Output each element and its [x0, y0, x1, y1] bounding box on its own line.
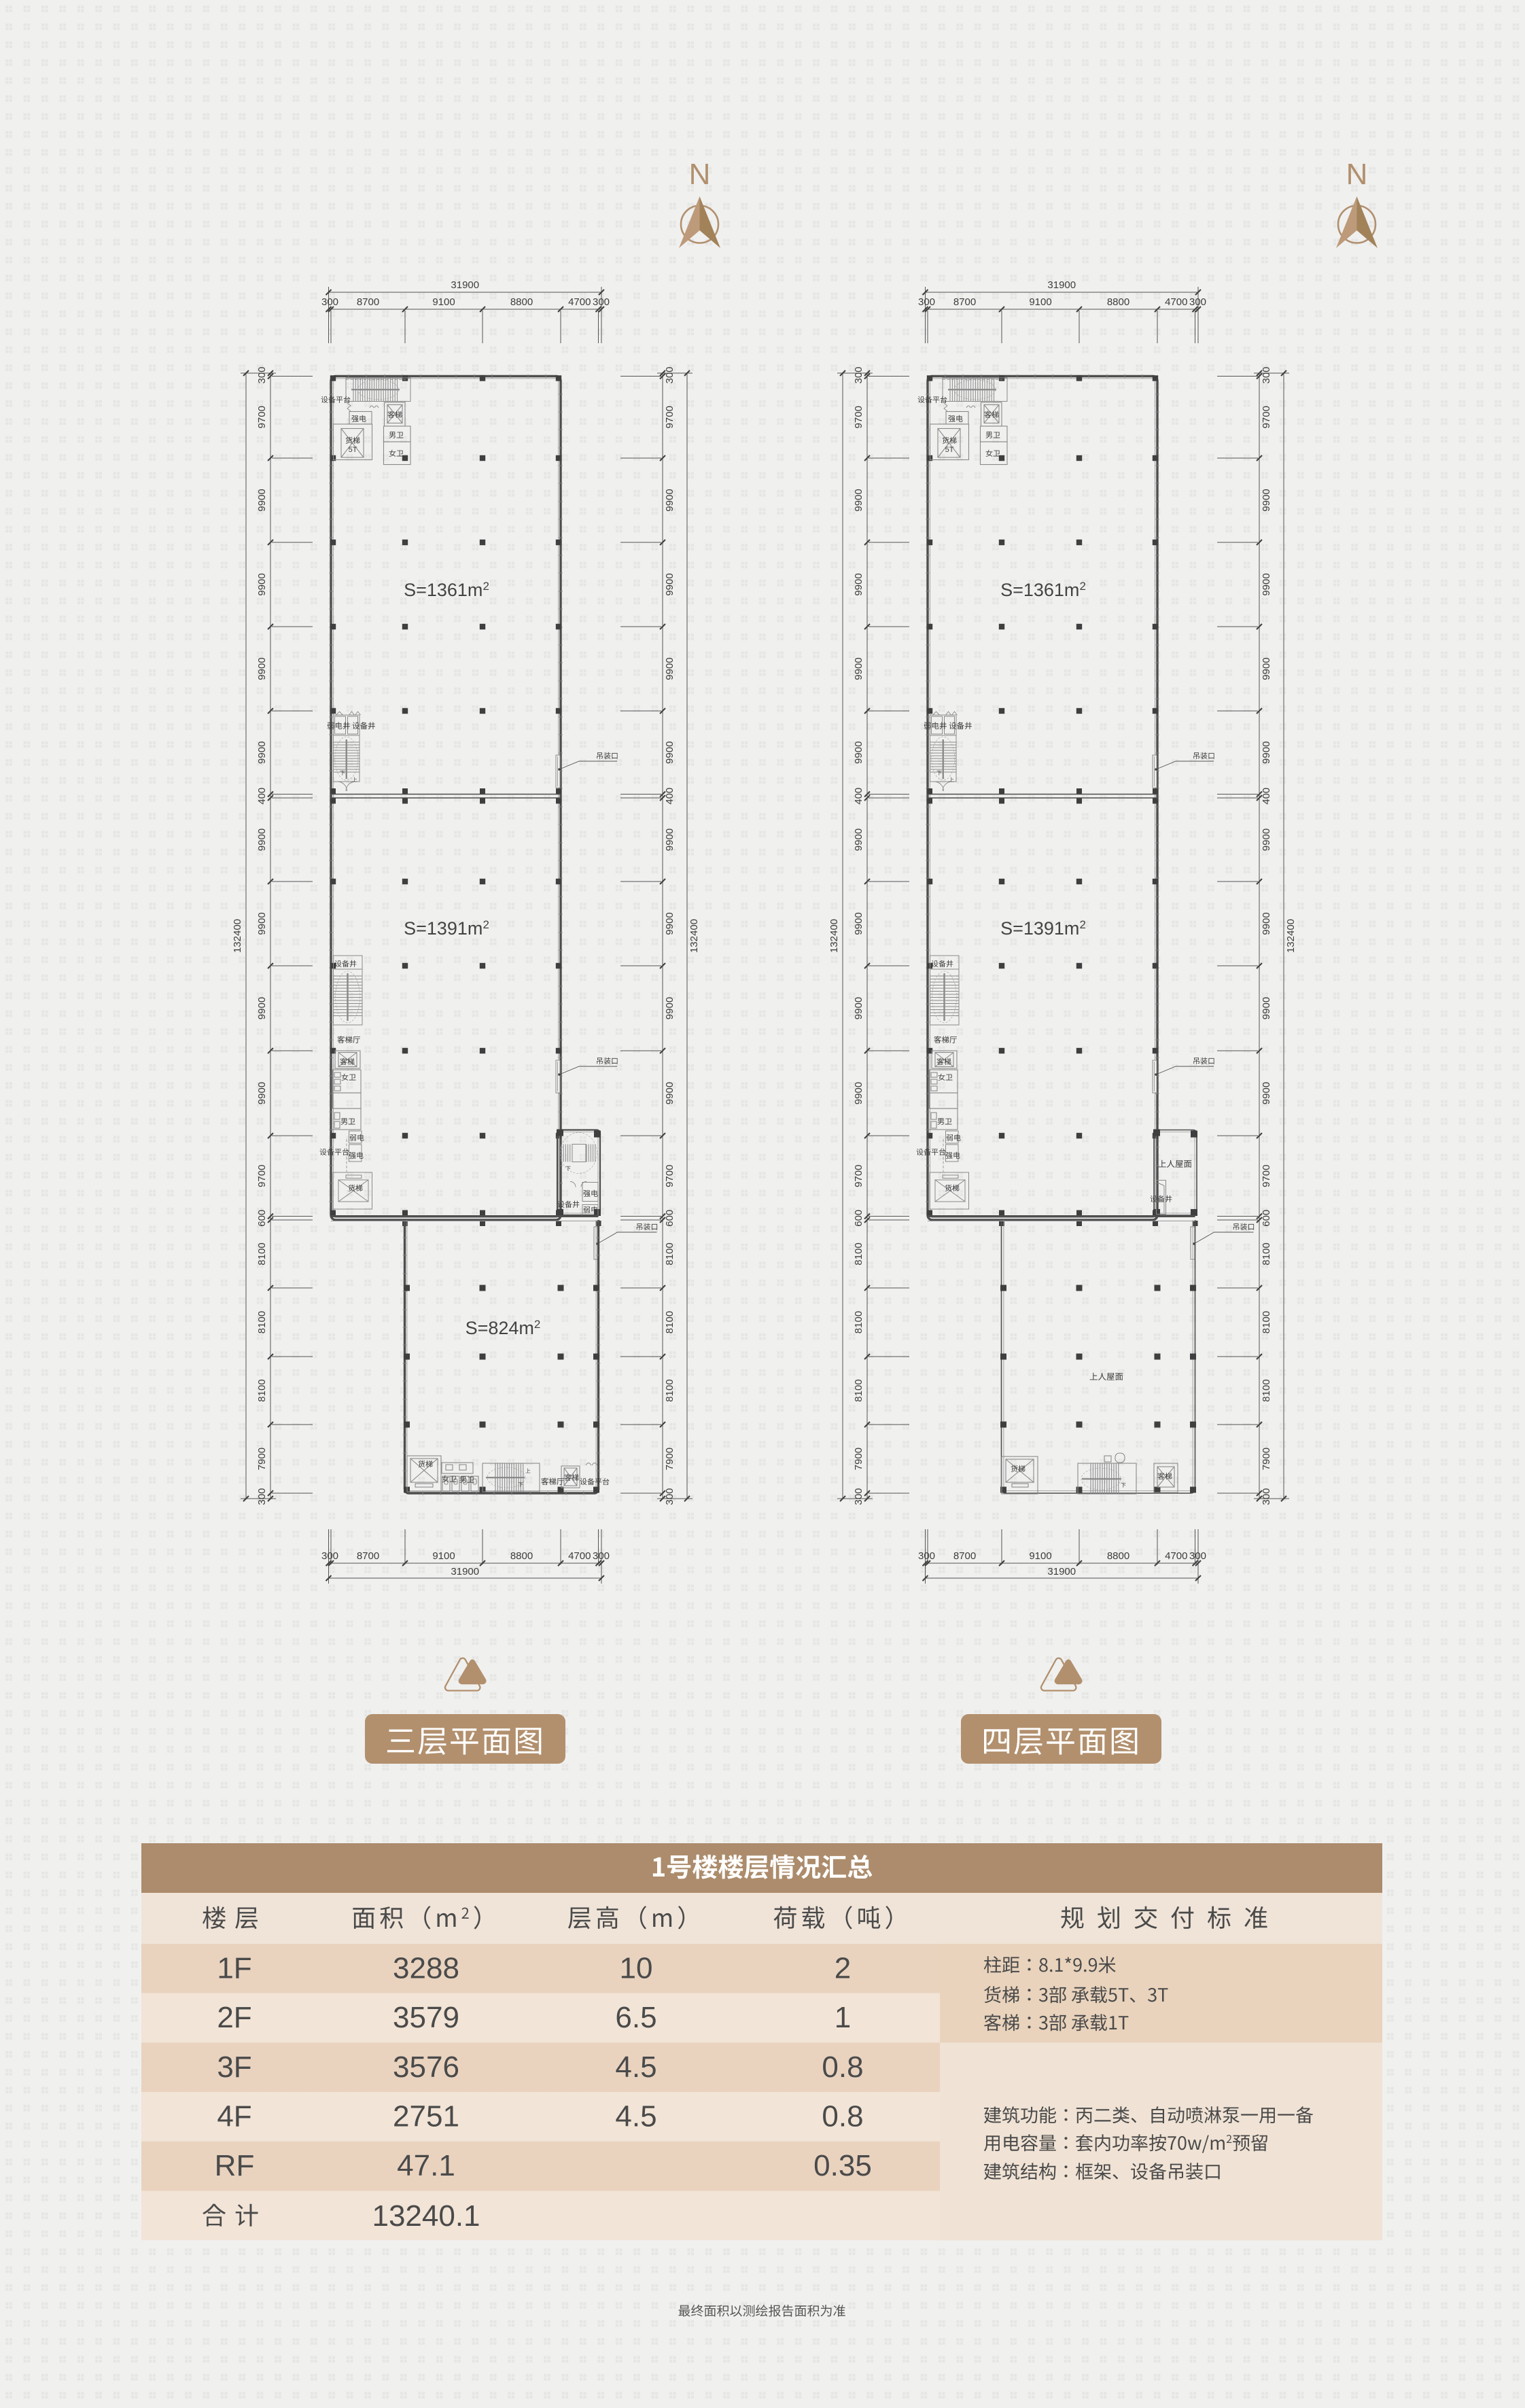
svg-text:4700: 4700 [568, 1550, 591, 1562]
svg-text:9900: 9900 [664, 912, 676, 935]
svg-text:9900: 9900 [256, 573, 268, 595]
svg-text:2751: 2751 [393, 2099, 459, 2133]
svg-text:8800: 8800 [1107, 296, 1129, 308]
svg-text:2: 2 [835, 1951, 851, 1985]
svg-text:10: 10 [620, 1951, 653, 1985]
svg-text:300: 300 [1261, 1488, 1272, 1505]
svg-text:8700: 8700 [953, 1550, 976, 1562]
svg-text:9900: 9900 [664, 997, 676, 1019]
svg-text:31900: 31900 [1047, 1566, 1076, 1577]
svg-text:13240.1: 13240.1 [372, 2199, 480, 2233]
svg-text:300: 300 [321, 1550, 338, 1562]
svg-text:8700: 8700 [357, 296, 379, 308]
svg-text:9900: 9900 [1261, 1082, 1272, 1104]
svg-text:600: 600 [1261, 1210, 1272, 1227]
svg-text:300: 300 [918, 1550, 935, 1562]
svg-text:4700: 4700 [568, 296, 591, 308]
svg-text:9700: 9700 [256, 406, 268, 428]
svg-text:300: 300 [321, 296, 338, 308]
svg-text:9100: 9100 [432, 296, 455, 308]
svg-text:8100: 8100 [256, 1379, 268, 1401]
svg-text:7900: 7900 [256, 1448, 268, 1470]
svg-text:4700: 4700 [1165, 296, 1187, 308]
svg-text:9700: 9700 [853, 406, 864, 428]
svg-text:9900: 9900 [664, 489, 676, 511]
svg-text:RF: RF [215, 2149, 255, 2182]
svg-text:31900: 31900 [1047, 279, 1076, 291]
svg-text:300: 300 [664, 1488, 676, 1505]
svg-text:9900: 9900 [256, 489, 268, 511]
svg-text:8100: 8100 [1261, 1379, 1272, 1401]
svg-text:9900: 9900 [256, 912, 268, 935]
svg-text:9900: 9900 [664, 1082, 676, 1104]
svg-text:9900: 9900 [853, 657, 864, 680]
svg-text:8800: 8800 [510, 296, 533, 308]
svg-text:6.5: 6.5 [615, 2001, 656, 2034]
svg-text:9900: 9900 [256, 997, 268, 1019]
svg-text:300: 300 [853, 366, 864, 383]
svg-text:3579: 3579 [393, 2001, 459, 2034]
svg-text:132400: 132400 [828, 919, 840, 953]
svg-text:S=1391m2: S=1391m2 [1000, 918, 1086, 939]
svg-text:9900: 9900 [1261, 741, 1272, 764]
svg-text:9700: 9700 [664, 1165, 676, 1187]
svg-text:600: 600 [853, 1210, 864, 1227]
svg-text:9900: 9900 [256, 741, 268, 764]
svg-text:9900: 9900 [853, 741, 864, 764]
svg-text:47.1: 47.1 [397, 2149, 455, 2182]
svg-text:132400: 132400 [688, 919, 700, 953]
svg-text:9900: 9900 [853, 573, 864, 595]
svg-text:400: 400 [1261, 788, 1272, 805]
svg-text:9900: 9900 [853, 997, 864, 1019]
svg-text:300: 300 [1189, 296, 1206, 308]
svg-text:400: 400 [853, 788, 864, 805]
svg-text:3288: 3288 [393, 1951, 459, 1985]
svg-text:1F: 1F [217, 1951, 251, 1985]
svg-text:132400: 132400 [1285, 919, 1297, 953]
svg-text:9700: 9700 [1261, 1165, 1272, 1187]
svg-text:9900: 9900 [1261, 828, 1272, 851]
svg-text:8100: 8100 [853, 1242, 864, 1265]
svg-text:9900: 9900 [1261, 912, 1272, 935]
svg-text:8100: 8100 [664, 1311, 676, 1333]
svg-text:9900: 9900 [853, 912, 864, 935]
svg-text:9100: 9100 [1029, 1550, 1051, 1562]
svg-text:9100: 9100 [1029, 296, 1051, 308]
svg-text:9900: 9900 [1261, 997, 1272, 1019]
svg-text:0.8: 0.8 [822, 2051, 863, 2084]
svg-text:S=1391m2: S=1391m2 [404, 918, 489, 939]
svg-text:S=824m2: S=824m2 [466, 1318, 541, 1338]
svg-text:300: 300 [664, 366, 676, 383]
svg-text:7900: 7900 [853, 1448, 864, 1470]
svg-text:9900: 9900 [853, 828, 864, 851]
svg-text:300: 300 [256, 1488, 268, 1505]
svg-text:N: N [689, 158, 711, 191]
svg-text:31900: 31900 [451, 1566, 479, 1577]
svg-text:8100: 8100 [664, 1242, 676, 1265]
svg-text:9900: 9900 [664, 657, 676, 680]
svg-text:8100: 8100 [256, 1311, 268, 1333]
svg-text:9100: 9100 [432, 1550, 455, 1562]
svg-text:9900: 9900 [853, 1082, 864, 1104]
svg-text:8100: 8100 [1261, 1242, 1272, 1265]
svg-text:3576: 3576 [393, 2051, 459, 2084]
svg-text:7900: 7900 [664, 1448, 676, 1470]
svg-text:8100: 8100 [1261, 1311, 1272, 1333]
svg-text:2F: 2F [217, 2001, 251, 2034]
svg-text:8700: 8700 [357, 1550, 379, 1562]
svg-text:8800: 8800 [510, 1550, 533, 1562]
svg-text:400: 400 [256, 788, 268, 805]
svg-text:4F: 4F [217, 2099, 251, 2133]
svg-text:9900: 9900 [1261, 573, 1272, 595]
svg-text:5T: 5T [349, 446, 357, 454]
svg-text:300: 300 [1261, 366, 1272, 383]
svg-text:9900: 9900 [853, 489, 864, 511]
svg-text:300: 300 [256, 366, 268, 383]
svg-text:400: 400 [664, 788, 676, 805]
svg-text:4.5: 4.5 [615, 2099, 656, 2133]
svg-text:7900: 7900 [1261, 1448, 1272, 1470]
svg-text:300: 300 [1189, 1550, 1206, 1562]
svg-text:9700: 9700 [664, 406, 676, 428]
svg-text:300: 300 [918, 296, 935, 308]
svg-text:0.8: 0.8 [822, 2099, 863, 2133]
svg-text:S=1361m2: S=1361m2 [1000, 580, 1086, 600]
svg-text:9700: 9700 [256, 1165, 268, 1187]
svg-text:300: 300 [593, 296, 610, 308]
svg-text:9900: 9900 [664, 828, 676, 851]
svg-text:1: 1 [835, 2001, 851, 2034]
svg-text:0.35: 0.35 [813, 2149, 872, 2182]
svg-text:9900: 9900 [1261, 657, 1272, 680]
svg-text:9900: 9900 [664, 573, 676, 595]
svg-text:N: N [1346, 158, 1368, 191]
svg-text:4.5: 4.5 [615, 2051, 656, 2084]
svg-text:9700: 9700 [853, 1165, 864, 1187]
svg-text:8100: 8100 [664, 1379, 676, 1401]
svg-text:31900: 31900 [451, 279, 479, 291]
svg-text:S=1361m2: S=1361m2 [404, 580, 489, 600]
svg-text:600: 600 [256, 1210, 268, 1227]
svg-text:8100: 8100 [256, 1242, 268, 1265]
svg-text:9900: 9900 [1261, 489, 1272, 511]
svg-text:8100: 8100 [853, 1311, 864, 1333]
svg-text:8700: 8700 [953, 296, 976, 308]
svg-text:9700: 9700 [1261, 406, 1272, 428]
svg-text:3F: 3F [217, 2051, 251, 2084]
svg-text:8100: 8100 [853, 1379, 864, 1401]
svg-text:300: 300 [853, 1488, 864, 1505]
svg-text:9900: 9900 [256, 1082, 268, 1104]
svg-text:9900: 9900 [256, 657, 268, 680]
svg-text:600: 600 [664, 1210, 676, 1227]
svg-text:5T: 5T [945, 446, 954, 454]
svg-text:9900: 9900 [256, 828, 268, 851]
svg-text:300: 300 [593, 1550, 610, 1562]
svg-text:4700: 4700 [1165, 1550, 1187, 1562]
svg-text:9900: 9900 [664, 741, 676, 764]
svg-text:132400: 132400 [232, 919, 243, 953]
svg-text:8800: 8800 [1107, 1550, 1129, 1562]
